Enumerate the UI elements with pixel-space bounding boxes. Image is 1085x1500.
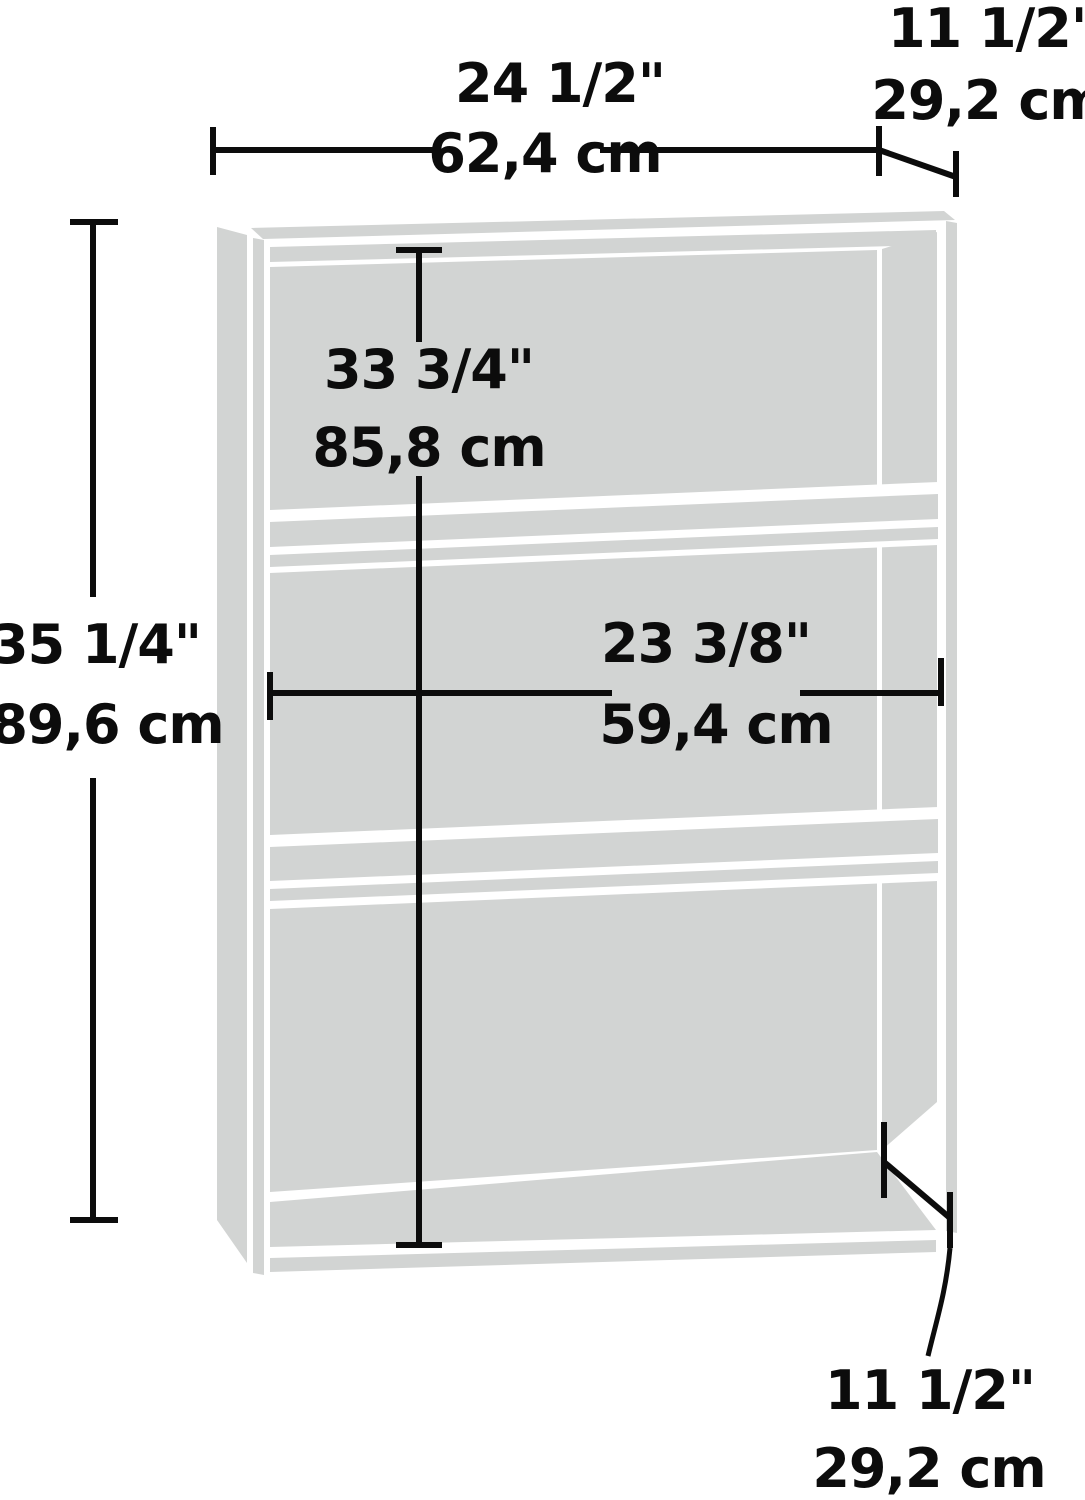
bookcase-right-edge-strip [946, 221, 957, 1233]
label-interior-height-inches: 33 3/4" [324, 343, 534, 397]
label-interior-width-inches: 23 3/8" [601, 617, 811, 671]
leader-curve [928, 1248, 950, 1356]
bookcase-left-edge-strip [253, 238, 264, 1275]
dim-bottom-depth [884, 1122, 950, 1356]
label-interior-width-metric: 59,4 cm [599, 698, 832, 752]
dim-top-depth [879, 150, 956, 197]
label-overall-width-metric: 62,4 cm [428, 127, 661, 181]
label-top-depth-inches: 11 1/2" [888, 2, 1085, 56]
label-interior-height-metric: 85,8 cm [312, 421, 545, 475]
bookcase-dimension-diagram: 24 1/2" 62,4 cm 11 1/2" 29,2 cm 35 1/4" … [0, 0, 1085, 1500]
label-top-depth-metric: 29,2 cm [871, 74, 1085, 128]
bookcase-bottom-front-edge [270, 1240, 936, 1272]
label-bottom-depth-metric: 29,2 cm [812, 1442, 1045, 1496]
label-overall-width-inches: 24 1/2" [455, 57, 665, 111]
label-bottom-depth-inches: 11 1/2" [825, 1364, 1035, 1418]
label-overall-height-inches: 35 1/4" [0, 618, 201, 672]
label-overall-height-metric: 89,6 cm [0, 698, 224, 752]
